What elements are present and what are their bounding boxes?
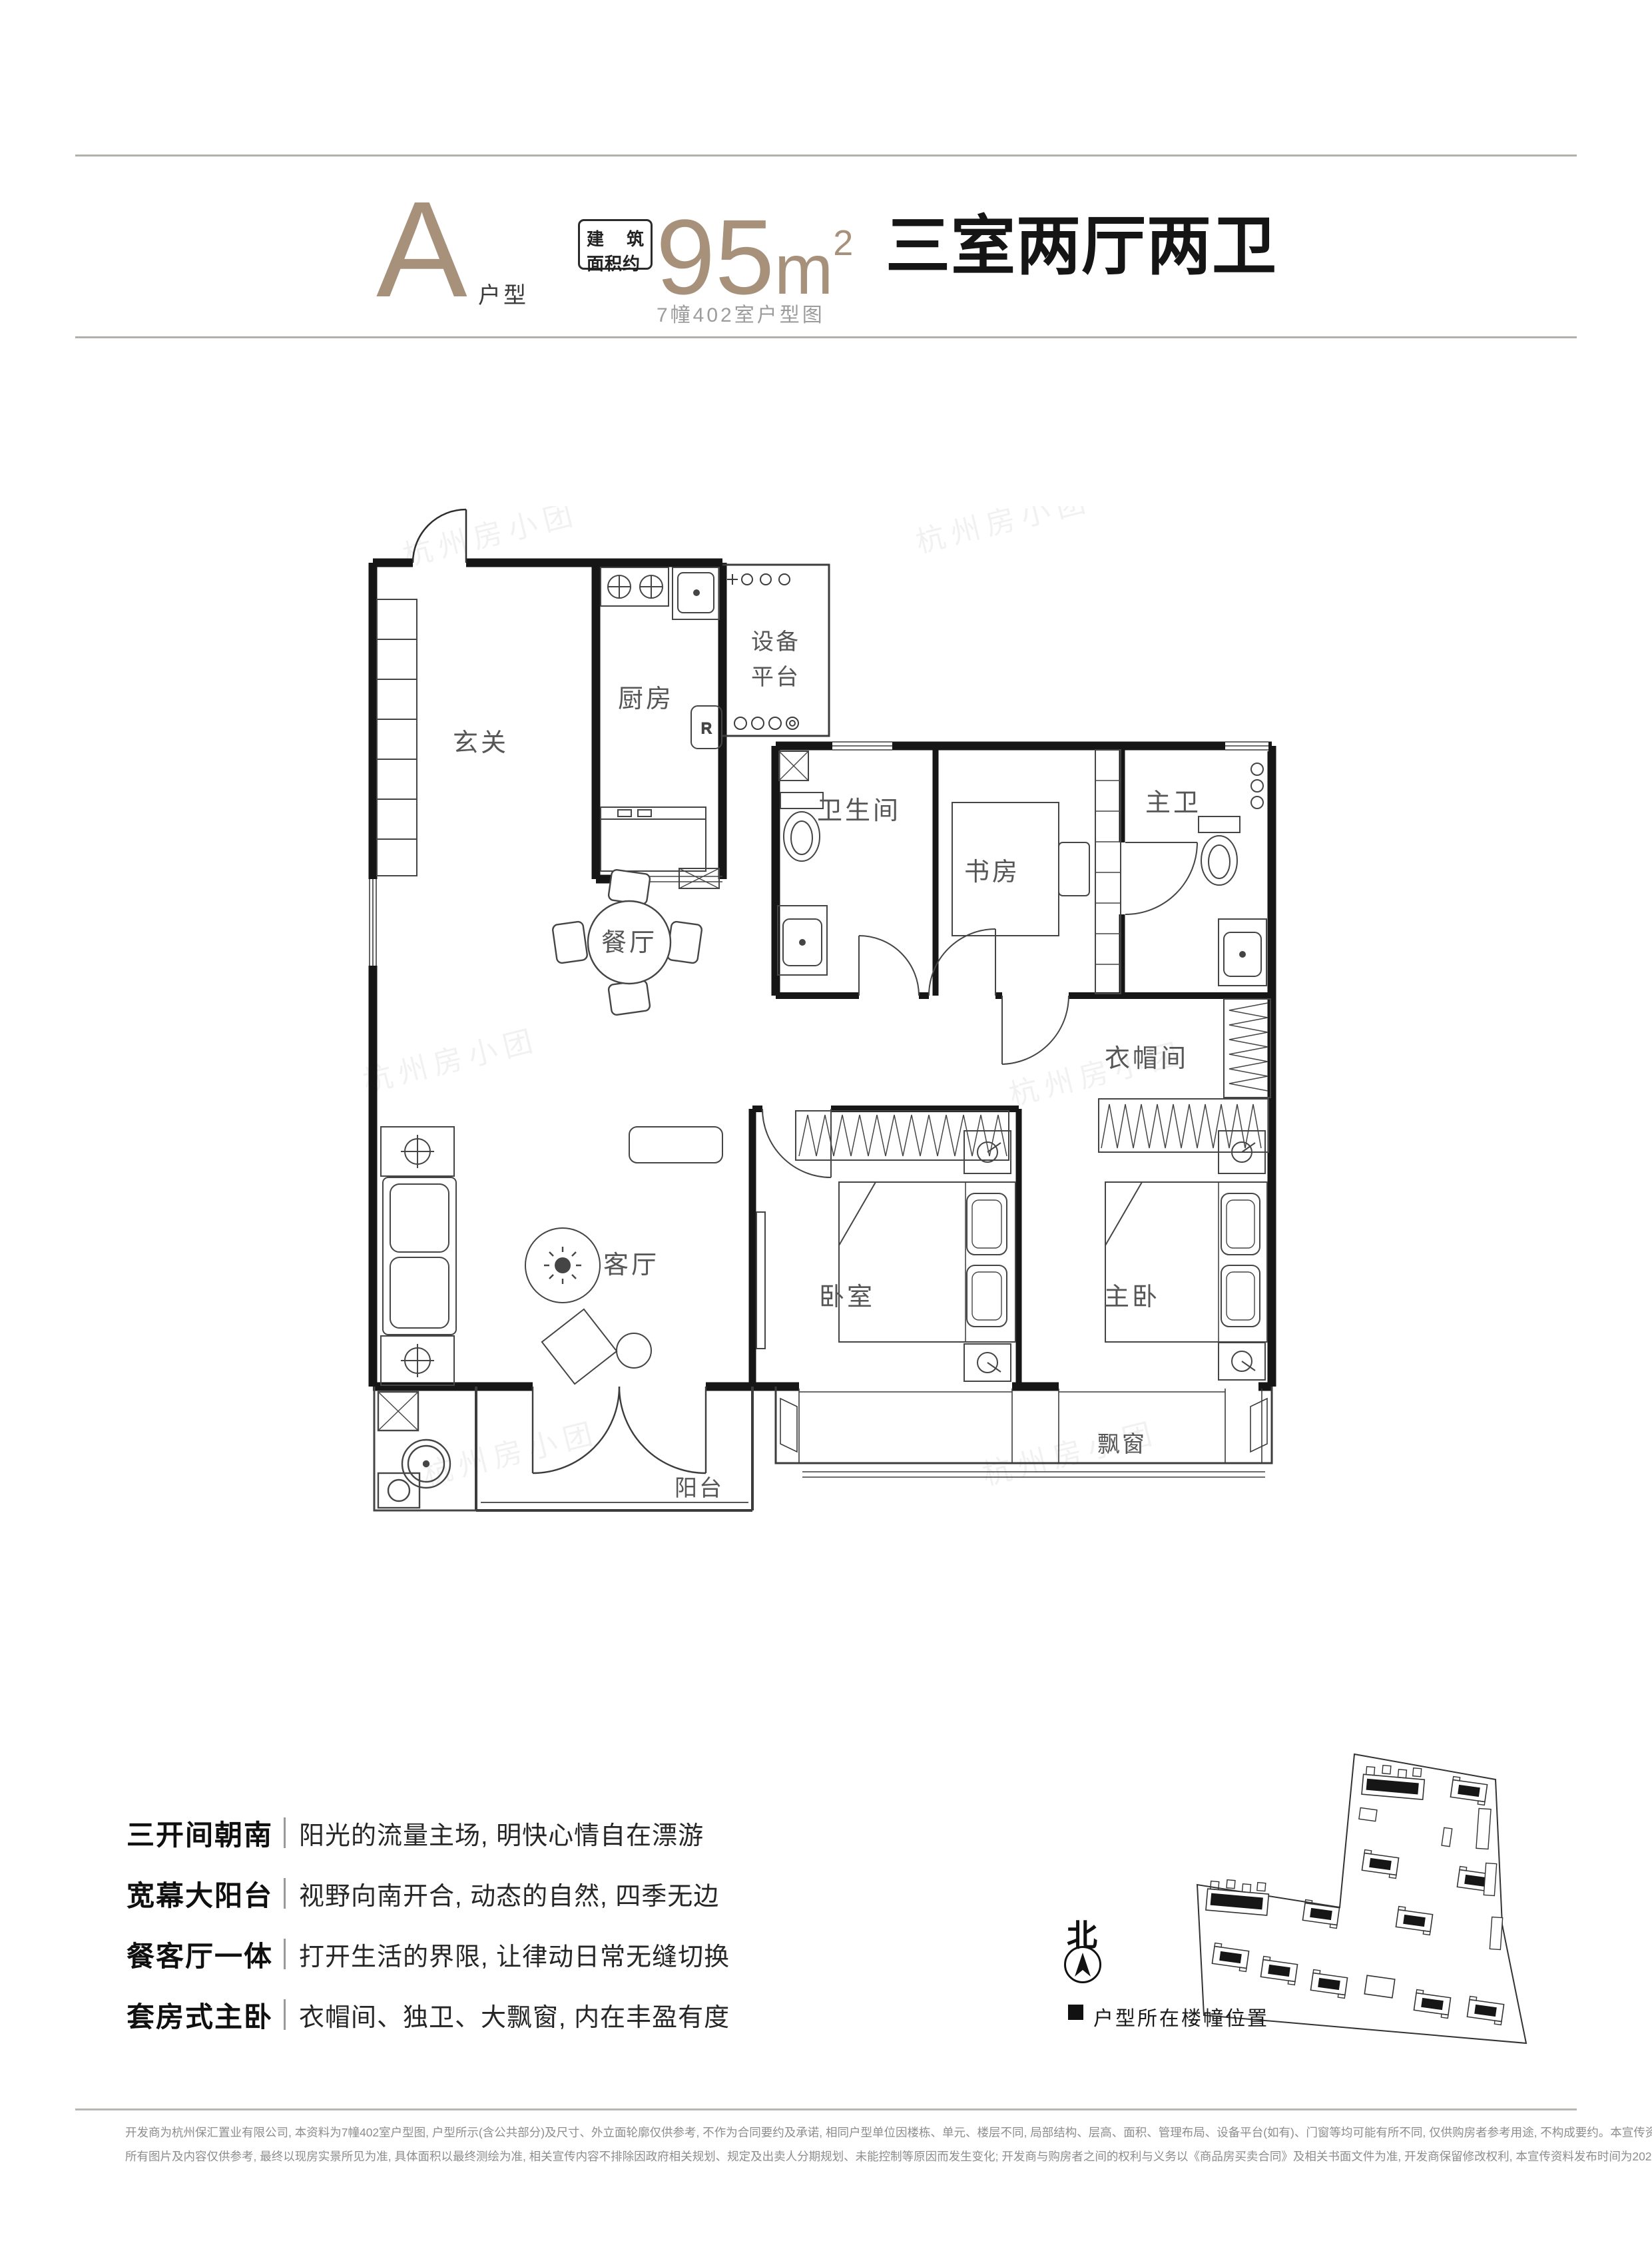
layout-headline: 三室两厅两卫 — [886, 213, 1277, 280]
site-plan — [1125, 1612, 1578, 2051]
feature-desc-4: 衣帽间、独卫、大飘窗, 内在丰盈有度 — [299, 1997, 730, 2033]
feature-row-1: 三开间朝南 阳光的流量主场, 明快心情自在漂游 — [127, 1814, 704, 1851]
area-unit: m — [774, 230, 833, 309]
area-box-line2: 面积约 — [587, 250, 644, 275]
room-label-dining: 餐厅 — [601, 929, 657, 957]
room-label-cloakroom: 衣帽间 — [1105, 1045, 1189, 1073]
area-box-char2: 筑 — [627, 226, 644, 250]
master-bedroom-furniture — [1105, 1131, 1267, 1380]
site-building-large-left — [1206, 1878, 1270, 1915]
unit-letter: A — [376, 181, 467, 318]
disclaimer-line-1: 开发商为杭州保汇置业有限公司, 本资料为7幢402室户型图, 户型所示(含公共部… — [125, 2120, 1652, 2144]
feature-title-2: 宽幕大阳台 — [127, 1873, 273, 1914]
kitchen-fixtures: R — [601, 567, 722, 888]
watermark-text: 杭州房小团 — [913, 506, 1095, 559]
feature-row-4: 套房式主卧 衣帽间、独卫、大飘窗, 内在丰盈有度 — [127, 1996, 730, 2033]
room-label-master-bath: 主卫 — [1145, 789, 1201, 817]
feature-desc-1: 阳光的流量主场, 明快心情自在漂游 — [299, 1815, 704, 1851]
feature-row-2: 宽幕大阳台 视野向南开合, 动态的自然, 四季无边 — [127, 1875, 719, 1912]
feature-title-4: 套房式主卧 — [127, 1995, 273, 2035]
disclaimer-divider — [75, 2108, 1577, 2110]
north-compass — [1064, 1946, 1101, 1983]
living-room-furniture — [381, 1127, 722, 1385]
feature-title-1: 三开间朝南 — [127, 1813, 273, 1853]
room-label-study: 书房 — [964, 858, 1020, 886]
plan-subtitle: 7幢402室户型图 — [657, 298, 825, 328]
bedroom-furniture — [756, 1109, 1015, 1381]
floor-plan: 杭州房小团 杭州房小团 杭州房小团 杭州房小团 杭州房小团 杭州房小团 — [333, 506, 1285, 1525]
shoe-cabinet — [377, 599, 417, 876]
feature-separator — [284, 1939, 286, 1969]
bathroom-fixtures — [778, 751, 919, 996]
top-divider — [75, 155, 1577, 157]
fridge-label: R — [701, 720, 712, 737]
bay-window — [776, 1387, 1272, 1477]
room-label-bathroom: 卫生间 — [817, 797, 901, 825]
windows — [368, 741, 1268, 966]
room-label-entry: 玄关 — [453, 729, 509, 757]
area-box-char1: 建 — [587, 226, 604, 250]
room-label-platform-2: 平台 — [751, 665, 800, 690]
disclaimer-line-2: 所有图片及内容仅供参考, 最终以现房实景所见为准, 具体面积以最终测绘为准, 相… — [125, 2144, 1652, 2168]
room-label-bedroom: 卧室 — [819, 1283, 875, 1311]
feature-desc-3: 打开生活的界限, 让律动日常无缝切换 — [299, 1936, 730, 1973]
feature-separator — [284, 1817, 286, 1848]
room-label-balcony: 阳台 — [675, 1476, 724, 1501]
area-box-line1: 建 筑 — [587, 226, 644, 250]
feature-row-3: 餐客厅一体 打开生活的界限, 让律动日常无缝切换 — [127, 1935, 730, 1973]
room-label-platform-1: 设备 — [751, 629, 800, 655]
area-box: 建 筑 面积约 — [578, 219, 653, 270]
area-exponent: 2 — [833, 223, 853, 263]
feature-separator — [284, 1878, 286, 1909]
header-divider — [75, 336, 1577, 338]
feature-title-3: 餐客厅一体 — [127, 1934, 273, 1975]
room-label-kitchen: 厨房 — [618, 685, 674, 713]
feature-separator — [284, 1999, 286, 2030]
floorplan-sheet: A 户型 建 筑 面积约 95m2 7幢402室户型图 三室两厅两卫 杭州房小团… — [0, 0, 1652, 2243]
area-figure: 95m2 — [656, 204, 853, 310]
north-arrow-icon — [1071, 1951, 1094, 1978]
unit-suffix-label: 户型 — [478, 277, 529, 310]
study-furniture — [929, 750, 1121, 996]
room-label-master-bedroom: 主卧 — [1104, 1283, 1160, 1311]
legend-label: 户型所在楼幢位置 — [1093, 2002, 1269, 2031]
legend-square-icon — [1068, 2005, 1083, 2020]
room-label-bay-window: 飘窗 — [1097, 1432, 1147, 1457]
room-label-living: 客厅 — [603, 1251, 659, 1279]
utility-corner — [374, 1387, 476, 1510]
watermark-text: 杭州房小团 — [360, 1024, 543, 1099]
site-building-large-top — [1362, 1763, 1426, 1799]
feature-desc-2: 视野向南开合, 动态的自然, 四季无边 — [299, 1875, 719, 1912]
